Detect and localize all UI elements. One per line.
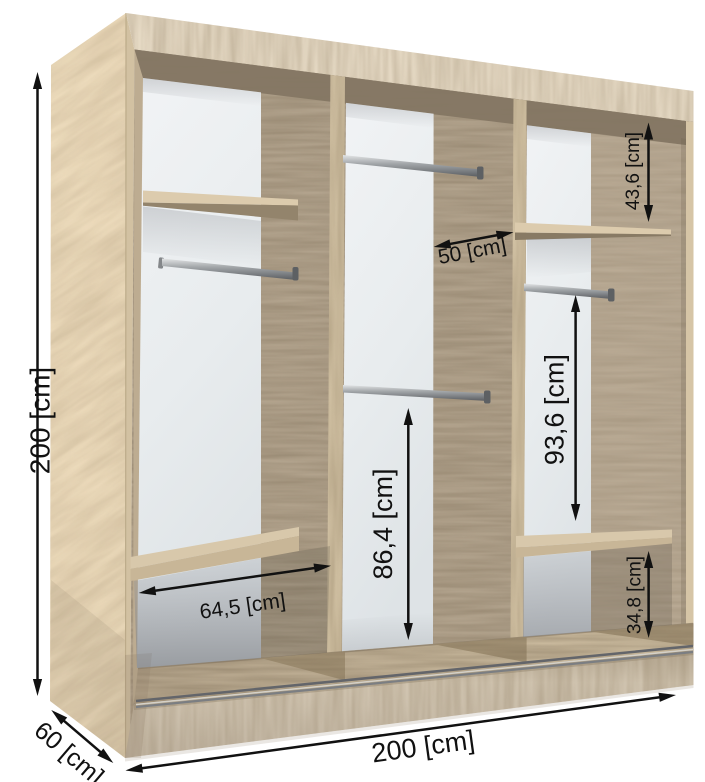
- svg-text:43,6 [cm]: 43,6 [cm]: [623, 132, 644, 210]
- svg-text:200 [cm]: 200 [cm]: [24, 367, 55, 474]
- svg-text:34,8 [cm]: 34,8 [cm]: [625, 556, 646, 634]
- svg-text:86,4 [cm]: 86,4 [cm]: [368, 468, 398, 579]
- svg-text:93,6 [cm]: 93,6 [cm]: [540, 354, 570, 465]
